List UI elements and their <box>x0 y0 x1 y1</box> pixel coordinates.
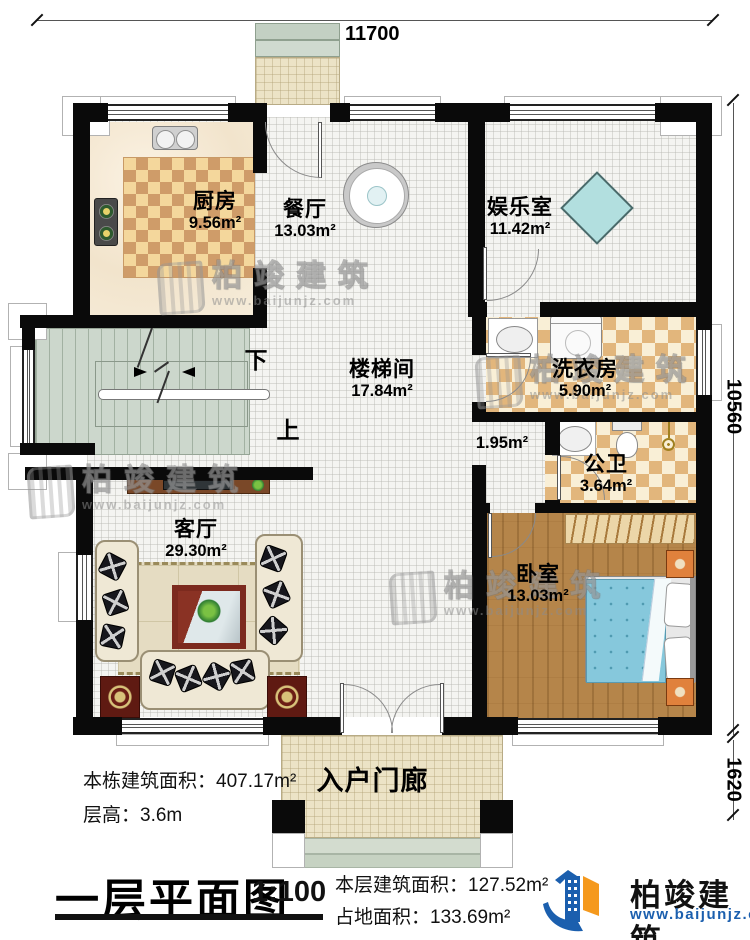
sink-basin <box>176 130 195 149</box>
washer-drum <box>565 330 591 356</box>
living-window <box>122 718 263 734</box>
room-area: 9.56m² <box>165 214 265 232</box>
stair-handrail <box>98 389 270 400</box>
wall <box>20 315 267 328</box>
rear-porch-floor <box>255 57 340 105</box>
title-underline <box>55 914 323 920</box>
entry-door-leaf <box>440 683 444 733</box>
laundry-sink <box>488 318 538 358</box>
dining-table-lamp <box>367 186 387 206</box>
sofa-pillow <box>230 659 255 684</box>
building-area-value: 407.17m² <box>216 771 296 792</box>
room-area: 13.03m² <box>488 587 588 605</box>
floor-area-line: 本层建筑面积：127.52m² <box>335 870 548 897</box>
stair-up-label: 上 <box>272 418 304 444</box>
top-dimension-line <box>37 20 713 21</box>
kitchen-stove <box>94 198 118 246</box>
wall <box>696 395 712 735</box>
room-label-entertainment: 娱乐室 11.42m² <box>470 196 570 238</box>
room-name: 公卫 <box>556 453 656 477</box>
sink-basin <box>156 130 175 149</box>
window-sill <box>512 734 664 746</box>
brand-name: 柏竣建筑 <box>630 870 750 940</box>
wall <box>263 717 342 735</box>
room-area: 13.03m² <box>255 222 355 240</box>
room-area: 5.90m² <box>535 382 635 400</box>
building-area-label: 本栋建筑面积： <box>83 771 216 792</box>
brand-website: www.baijunjz.com <box>630 906 750 923</box>
wardrobe <box>565 514 695 544</box>
side-table <box>267 676 307 718</box>
room-name: 客厅 <box>146 518 246 542</box>
room-area: 17.84m² <box>332 382 432 400</box>
room-label-bedroom: 卧室 13.03m² <box>488 563 588 605</box>
bed-headboard <box>690 577 695 683</box>
kitchen-window <box>108 104 228 121</box>
brand-logo-icon <box>535 862 627 934</box>
porch-column <box>272 800 305 833</box>
wall <box>253 103 267 173</box>
room-name: 卧室 <box>488 563 588 587</box>
wall <box>472 412 700 422</box>
washing-machine <box>550 315 602 359</box>
floor-height-value: 3.6m <box>140 805 182 826</box>
plant <box>196 598 222 624</box>
porch-column-base <box>480 833 513 868</box>
room-area: 3.64m² <box>556 477 656 495</box>
laundry-window <box>696 330 712 395</box>
tv <box>163 480 233 490</box>
room-label-bathroom: 公卫 3.64m² <box>556 453 656 495</box>
entry-porch-step <box>300 854 497 868</box>
room-label-kitchen: 厨房 9.56m² <box>165 190 265 232</box>
stair-window <box>22 350 35 443</box>
side-table <box>100 676 140 718</box>
wall <box>22 328 35 350</box>
wall <box>76 480 93 555</box>
window-sill <box>116 734 269 746</box>
wall <box>73 717 122 735</box>
wall <box>472 513 487 735</box>
wall <box>472 503 490 513</box>
kitchen-sink <box>152 126 198 150</box>
bedroom-window <box>518 718 658 734</box>
room-area: 29.30m² <box>146 542 246 560</box>
room-label-stairwell: 楼梯间 17.84m² <box>332 358 432 400</box>
shower-head-icon <box>662 438 675 451</box>
window-sill <box>58 552 78 622</box>
living-window <box>76 555 93 620</box>
room-name: 娱乐室 <box>470 196 570 220</box>
room-name: 入户门廊 <box>310 766 435 796</box>
room-area: 1.95m² <box>470 434 534 452</box>
top-dimension-label: 11700 <box>345 23 425 46</box>
stair-down-label: 下 <box>240 348 272 374</box>
plant <box>252 479 264 491</box>
washer-panel <box>551 323 601 324</box>
wall <box>535 503 712 513</box>
wall <box>20 443 95 455</box>
wall <box>696 103 712 330</box>
porch-column-base <box>272 833 305 868</box>
room-name: 厨房 <box>165 190 265 214</box>
stove-burner <box>99 226 114 241</box>
sink-basin <box>558 426 592 452</box>
stove-burner <box>99 204 114 219</box>
nightstand <box>666 678 694 706</box>
building-area-line: 本栋建筑面积：407.17m² <box>83 766 296 793</box>
room-label-corridor: 1.95m² <box>470 434 534 452</box>
room-name: 餐厅 <box>255 198 355 222</box>
land-area-line: 占地面积：133.69m² <box>335 902 510 929</box>
porch-column <box>480 800 513 833</box>
coffee-table <box>172 585 246 649</box>
land-area-label: 占地面积： <box>335 907 430 928</box>
bed <box>585 576 696 682</box>
floor-area-label: 本层建筑面积： <box>335 875 468 896</box>
stair-arrow-left-icon <box>182 367 195 377</box>
entry-porch-step <box>300 838 497 854</box>
wall <box>472 312 486 355</box>
room-label-living: 客厅 29.30m² <box>146 518 246 560</box>
scale-label: 1:100 <box>252 876 326 909</box>
sink-basin <box>496 326 533 353</box>
wall <box>25 467 313 480</box>
nightstand <box>666 550 694 578</box>
room-label-entry-porch: 入户门廊 <box>310 766 435 796</box>
stair-arrow-right-icon <box>134 367 147 377</box>
entertainment-window <box>510 104 655 121</box>
sofa-pillow <box>100 624 125 649</box>
land-area-value: 133.69m² <box>430 907 510 928</box>
room-label-dining: 餐厅 13.03m² <box>255 198 355 240</box>
wall <box>545 420 560 455</box>
rear-porch-step <box>255 40 340 57</box>
room-label-laundry: 洗衣房 5.90m² <box>535 358 635 400</box>
porch-depth-dimension-label: 1620 <box>722 752 745 808</box>
shower-head <box>668 420 670 438</box>
wall <box>253 268 267 315</box>
wall <box>540 302 697 317</box>
room-name: 洗衣房 <box>535 358 635 382</box>
rear-porch-step <box>255 23 340 40</box>
room-name: 楼梯间 <box>332 358 432 382</box>
room-area: 11.42m² <box>470 220 570 238</box>
floor-plan-canvas: 11700 10560 1620 下 上 <box>0 0 750 940</box>
dining-window <box>350 104 435 121</box>
right-dimension-label: 10560 <box>722 379 745 435</box>
floor-height-label: 层高： <box>83 805 140 826</box>
floor-height-line: 层高：3.6m <box>83 800 182 827</box>
wall <box>330 103 350 122</box>
wall <box>73 103 90 315</box>
